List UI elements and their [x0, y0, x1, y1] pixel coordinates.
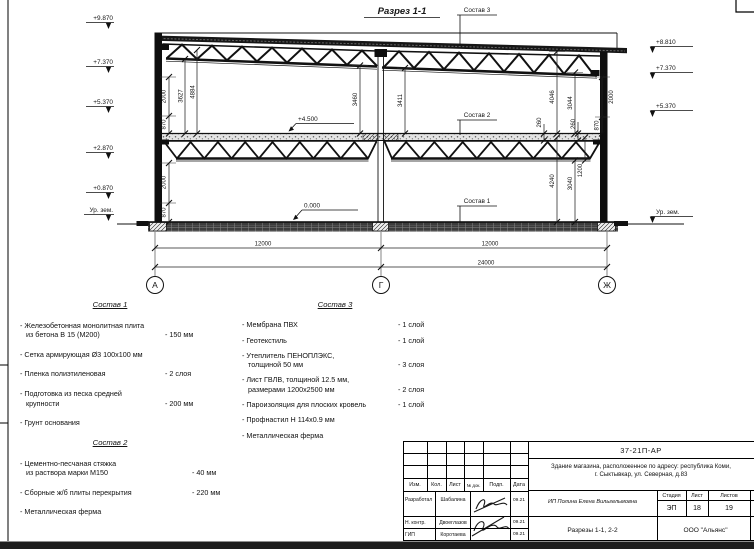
floor-slab — [162, 134, 600, 141]
roof — [155, 33, 628, 53]
ground-step-right — [614, 221, 628, 226]
tb-role: Н. контр. — [405, 519, 435, 527]
dim-260-a: 260 — [537, 117, 543, 128]
item-text: - Металлическая ферма — [242, 431, 452, 440]
floor-truss-left — [163, 141, 377, 161]
tb-col-ndok: № док. — [464, 479, 483, 491]
composition-title: Состав 3 — [242, 300, 428, 309]
callout-sostav-1: Состав 1 — [464, 198, 491, 205]
tb-col-data: Дата — [510, 479, 528, 491]
composition-list-1: Состав 1 - Железобетонная монолитная пли… — [20, 300, 220, 438]
roof-truss-left — [163, 44, 377, 69]
item-text: - Профнастил Н 114х0.9 мм — [242, 415, 452, 424]
item-text: - Лист ГВЛВ, толщиной 12.5 мм, — [242, 375, 452, 384]
dim-span-12000-right: 12000 — [482, 242, 499, 248]
axis-j: Ж — [603, 280, 611, 290]
item-text: - Сетка армирующая Ø3 100х100 мм — [20, 350, 220, 360]
dim-2000-right: 2000 — [609, 90, 615, 104]
tb-sheet-value: 18 — [686, 502, 708, 515]
elevation-mark: +5.370 — [656, 103, 676, 110]
elevation-mark: +8.810 — [656, 39, 676, 46]
tb-project: Здание магазина, расположенное по адресу… — [528, 460, 754, 492]
dim-span-12000-left: 12000 — [255, 242, 272, 248]
list-item: - Цементно-песчаная стяжка из раствора м… — [20, 459, 230, 478]
tb-role: Разработал — [405, 496, 435, 504]
corner-box — [736, 0, 754, 12]
list-item: - Металлическая ферма — [20, 507, 230, 517]
tb-col-kol: Кол. — [427, 479, 446, 491]
item-text: - Металлическая ферма — [20, 507, 230, 517]
dim-3627: 3627 — [179, 89, 185, 103]
truss-seat — [593, 140, 600, 145]
list-item: - Железобетонная монолитная плита из бет… — [20, 321, 220, 340]
ground-step-left — [137, 221, 149, 226]
elevation-mark: +2.870 — [93, 145, 113, 152]
tb-col-list: Лист — [446, 479, 464, 491]
item-value: - 2 слоя — [398, 385, 424, 394]
item-value: - 150 мм — [165, 330, 193, 340]
tb-name: Коротаева — [436, 531, 470, 539]
truss-seat — [162, 44, 169, 51]
list-item: - Утеплитель ПЕНОПЛЭКС, толщиной 50 мм -… — [242, 351, 452, 370]
list-item: - Сборные ж/б плиты перекрытия - 220 мм — [20, 488, 230, 498]
elevation-marks-left: +9.870 +7.370 +5.370 +2.870 +0.870 Ур. з… — [84, 15, 114, 221]
level-0000: 0.000 — [304, 203, 320, 210]
list-item: - Лист ГВЛВ, толщиной 12.5 мм, размерами… — [242, 375, 452, 394]
composition-list-2: Состав 2 - Цементно-песчаная стяжка из р… — [20, 438, 230, 527]
callout-sostav-2: Состав 2 — [464, 112, 491, 119]
dim-4240: 4240 — [550, 174, 556, 188]
axis-g: Г — [379, 280, 384, 290]
dim-1200: 1200 — [578, 163, 584, 177]
item-text: - Железобетонная монолитная плита — [20, 321, 220, 331]
tb-project-line1: Здание магазина, расположенное по адресу… — [528, 463, 754, 471]
tb-name: Двоеглазов — [436, 519, 470, 527]
list-item: - Сетка армирующая Ø3 100х100 мм — [20, 350, 220, 360]
tb-project-line2: г. Сыктывкар, ул. Северная, д.83 — [528, 471, 754, 479]
axis-bubbles: А Г Ж — [147, 277, 616, 294]
tb-sheets-label: Листов — [708, 491, 750, 500]
composition-list-3: Состав 3 - Мембрана ПВХ - 1 слой - Геоте… — [242, 300, 452, 446]
callout-sostav-3: Состав 3 — [464, 7, 491, 14]
composition-title: Состав 1 — [20, 300, 200, 310]
tb-doc-number: 37-21П-АР — [528, 443, 754, 457]
level-leaders: +4.500 0.000 — [289, 116, 359, 220]
dim-2000-upper-left: 2000 — [162, 89, 168, 103]
dim-3411: 3411 — [398, 93, 404, 107]
item-text: - Грунт основания — [20, 418, 220, 428]
dim-260-b: 260 — [571, 118, 577, 129]
tb-date: 09.21 — [510, 519, 528, 527]
dim-4046: 4046 — [550, 90, 556, 104]
list-item: - Грунт основания — [20, 418, 220, 428]
section-title: Разрез 1-1 — [378, 6, 427, 17]
tb-sheets-value: 19 — [708, 502, 750, 515]
dim-3044: 3044 — [568, 96, 574, 110]
item-value: - 40 мм — [192, 468, 216, 478]
list-item: - Пароизоляция для плоских кровель - 1 с… — [242, 400, 452, 409]
elevation-mark: +0.870 — [93, 185, 113, 192]
item-text: - Утеплитель ПЕНОПЛЭКС, — [242, 351, 452, 360]
composition-callouts: Состав 3 Состав 2 Состав 1 — [457, 7, 497, 222]
tb-sheet-title: Разрезы 1-1, 2-2 — [528, 521, 657, 539]
elevation-mark: +5.370 — [93, 99, 113, 106]
item-text: - Цементно-песчаная стяжка — [20, 459, 230, 469]
tb-sheet-label: Лист — [686, 491, 708, 500]
list-item: - Пленка полиэтиленовая - 2 слоя — [20, 369, 220, 379]
elevation-mark: +9.870 — [93, 15, 113, 22]
truss-seat — [162, 140, 169, 145]
elevation-mark: +7.370 — [656, 65, 676, 72]
list-item: - Геотекстиль - 1 слой — [242, 336, 452, 345]
elevation-mark: +7.370 — [93, 59, 113, 66]
composition-title: Состав 2 — [20, 438, 200, 448]
dim-3040: 3040 — [568, 176, 574, 190]
list-item: - Подготовка из песка средней крупности … — [20, 389, 220, 408]
title-block: Изм. Кол. Лист № док. Подп. Дата Разрабо… — [403, 441, 754, 541]
item-text: - Подготовка из песка средней — [20, 389, 220, 399]
dim-3460: 3460 — [353, 92, 359, 106]
item-value: - 1 слой — [398, 320, 424, 329]
dim-870-right: 870 — [595, 120, 601, 131]
tb-name: Шабалина — [436, 496, 470, 504]
truss-seat — [591, 70, 600, 76]
tb-date: 09.21 — [510, 531, 528, 539]
ground-level-mark: Ур. зем. — [656, 209, 680, 216]
dim-2000-lower-left: 2000 — [162, 175, 168, 189]
roof-truss-right — [382, 51, 601, 78]
list-item: - Профнастил Н 114х0.9 мм — [242, 415, 452, 424]
axis-a: А — [152, 280, 158, 290]
item-value: - 2 слоя — [165, 369, 191, 379]
item-value: - 200 мм — [165, 399, 193, 409]
item-value: - 220 мм — [192, 488, 220, 498]
drawing-sheet: Разрез 1-1 — [0, 0, 754, 549]
dim-870-upper-left: 870 — [162, 119, 168, 130]
ground-slab — [117, 221, 684, 232]
tb-stage-label: Стадия — [657, 491, 686, 500]
list-item: - Мембрана ПВХ - 1 слой — [242, 320, 452, 329]
level-4500: +4.500 — [298, 116, 318, 123]
item-value: - 1 слой — [398, 400, 424, 409]
tb-company: ООО "Альянс" — [657, 521, 754, 539]
item-value: - 1 слой — [398, 336, 424, 345]
extension-lines — [155, 52, 610, 277]
tb-stage-value: ЭП — [657, 502, 686, 515]
floor-truss-right — [384, 141, 600, 161]
dim-870-lower-left: 870 — [162, 207, 168, 218]
tb-col-izm: Изм. — [403, 479, 427, 491]
ground-level-mark: Ур. зем. — [90, 207, 114, 214]
tb-role: ГИП — [405, 531, 435, 539]
dim-4884: 4884 — [191, 85, 197, 99]
elevation-marks-right: +8.810 +7.370 +5.370 Ур. зем. — [650, 39, 693, 223]
list-item: - Металлическая ферма — [242, 431, 452, 440]
dim-total-24000: 24000 — [478, 261, 495, 267]
tb-client: ИП Полина Елена Вильгельмовна — [528, 496, 657, 508]
item-value: - 3 слоя — [398, 360, 424, 369]
tb-date: 09.21 — [510, 496, 528, 504]
tb-col-podp: Подп. — [483, 479, 510, 491]
